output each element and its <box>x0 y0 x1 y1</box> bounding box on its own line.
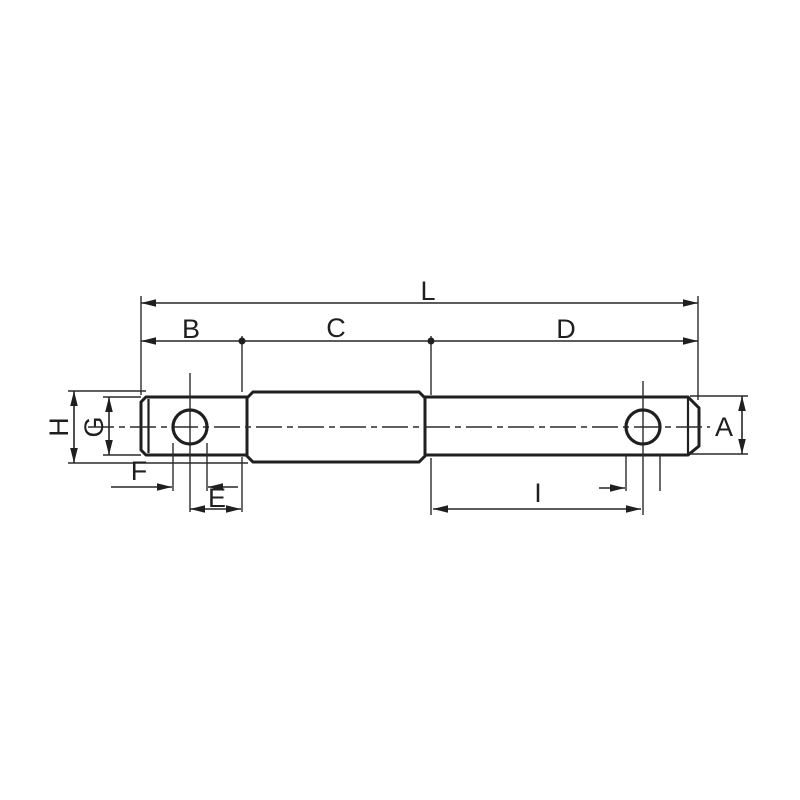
chain-dot-cd <box>428 338 435 345</box>
pin-left-section <box>141 397 247 455</box>
label-H: H <box>44 417 74 437</box>
pin-right-section <box>425 397 699 455</box>
label-D: D <box>556 314 576 344</box>
label-I: I <box>534 478 542 508</box>
label-L: L <box>420 276 435 306</box>
pin-dimension-diagram: L B C D H G <box>0 0 800 800</box>
label-C: C <box>326 313 346 343</box>
technical-drawing-page: L B C D H G <box>0 0 800 800</box>
label-A: A <box>715 412 733 442</box>
label-E: E <box>208 483 226 513</box>
label-G: G <box>79 416 109 437</box>
label-B: B <box>182 314 200 344</box>
chain-dot-bc <box>239 338 246 345</box>
label-F: F <box>131 456 148 486</box>
